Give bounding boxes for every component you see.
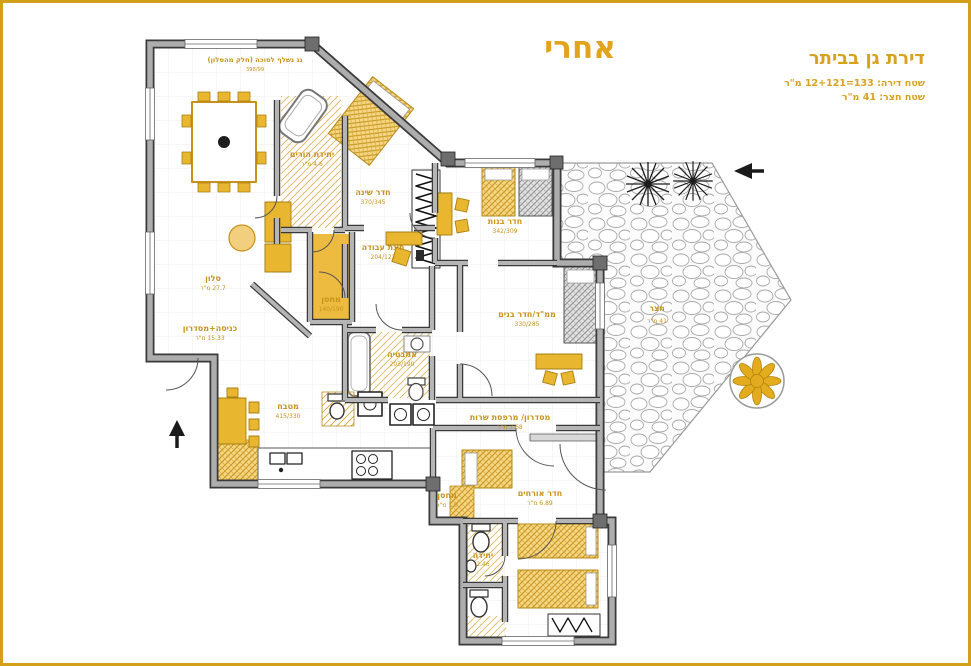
north-arrow-icon: [734, 163, 764, 179]
svg-text:27.7 מ"ר: 27.7 מ"ר: [200, 285, 226, 292]
unit-shower-floor: [466, 616, 506, 638]
flower-icon: [730, 354, 784, 408]
bed: [518, 570, 598, 608]
bed: [519, 166, 552, 216]
room-label-kitchen: מטבח: [277, 402, 299, 411]
svg-text:204/122: 204/122: [371, 254, 396, 261]
svg-text:370/345: 370/345: [361, 199, 386, 206]
room-label-work-corner: פינת עבודה: [362, 243, 405, 252]
entry-arrow-icon: [169, 420, 185, 448]
room-label-girls: חדר בנות: [488, 217, 523, 226]
guest-bed: [462, 450, 512, 488]
shelf: [530, 434, 600, 441]
window: [258, 480, 320, 489]
room-label-small-storage: מחסן: [437, 491, 457, 500]
window: [465, 159, 535, 168]
washbasin: [358, 392, 382, 416]
window: [596, 283, 605, 329]
tree-icon: [626, 162, 670, 206]
svg-text:2.46: 2.46: [476, 561, 490, 568]
bed: [518, 524, 598, 558]
dresser: [548, 614, 600, 636]
entry-door-arc: [166, 358, 198, 390]
room-label-living: סלון: [205, 274, 221, 283]
svg-text:1.0 מ"ר: 1.0 מ"ר: [436, 502, 458, 509]
bathtub: [348, 332, 370, 396]
side-table: [229, 225, 255, 251]
svg-text:415/330: 415/330: [276, 413, 301, 420]
svg-text:41 מ"ר: 41 מ"ר: [647, 318, 667, 325]
unit-toilet: [470, 590, 488, 617]
roof-note-label: גג נשלף לסוכה (חלק מהסלון): [207, 56, 302, 64]
washer: [390, 404, 411, 425]
window: [146, 88, 155, 140]
room-label-storage: מחסן: [321, 295, 341, 304]
room-label-bedroom: חדר שינה: [355, 188, 390, 197]
floor-plan: גג נשלף לסוכה (חלק מהסלון) 398/99 סלון 2…: [0, 0, 971, 666]
room-label-bathroom: אמבטיה: [387, 350, 417, 359]
svg-text:330/285: 330/285: [515, 321, 540, 328]
svg-text:203/190: 203/190: [390, 361, 415, 368]
bed: [482, 166, 515, 216]
room-label-unit: יחידה: [473, 551, 493, 560]
room-label-yard: חצר: [649, 304, 665, 313]
room-label-entrance: כניסה+מסדרון: [183, 324, 238, 333]
window: [502, 637, 574, 646]
room-label-service-corridor: מסדרון/ מרפסת שרות: [470, 413, 551, 422]
window: [146, 232, 155, 294]
stove: [352, 451, 392, 479]
room-label-parents-unit: יחידת הורים: [290, 150, 334, 159]
window: [185, 40, 257, 49]
roof-note-dims: 398/99: [246, 67, 264, 73]
svg-text:15.33 מ"ר: 15.33 מ"ר: [195, 335, 225, 342]
tree-icon: [673, 161, 713, 201]
room-label-boys: ממ"ד/חדר בנים: [498, 310, 556, 319]
window: [608, 545, 617, 597]
dryer: [413, 404, 434, 425]
dining-table: [182, 92, 266, 192]
room-label-guest-room: חדר אורחים: [518, 489, 563, 498]
svg-text:140/190: 140/190: [319, 306, 344, 313]
bed: [564, 267, 597, 343]
svg-text:7.68 מ"ר: 7.68 מ"ר: [497, 424, 523, 431]
svg-text:6.89 מ"ר: 6.89 מ"ר: [527, 500, 553, 507]
svg-text:4.6 מ"ר: 4.6 מ"ר: [301, 161, 323, 168]
svg-text:342/309: 342/309: [493, 228, 518, 235]
